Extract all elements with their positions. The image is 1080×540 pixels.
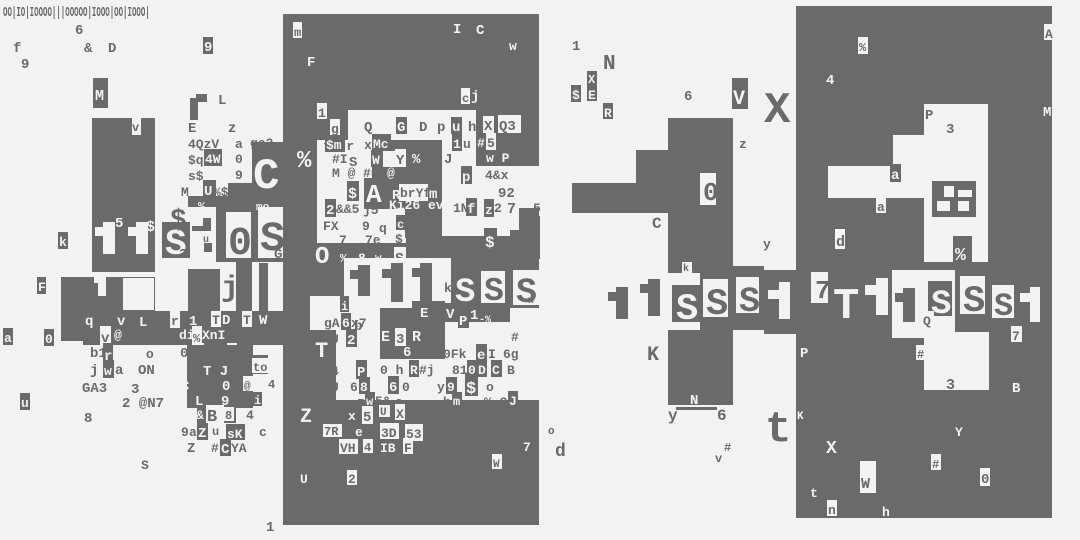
svg-text:D: D — [222, 313, 230, 329]
svg-text:p: p — [437, 120, 445, 136]
svg-text:m: m — [453, 395, 460, 409]
svg-text:i: i — [254, 394, 261, 408]
svg-text:Z: Z — [187, 441, 195, 457]
svg-text:4: 4 — [364, 441, 371, 455]
svg-text:P: P — [800, 346, 808, 362]
svg-text:w: w — [528, 296, 534, 307]
svg-text:2: 2 — [347, 333, 355, 349]
svg-text:n: n — [828, 503, 836, 518]
svg-text:A: A — [1045, 27, 1053, 42]
svg-text:$: $ — [146, 219, 155, 236]
svg-text:0Fk: 0Fk — [443, 347, 467, 362]
svg-text:P: P — [459, 314, 467, 330]
svg-text:6: 6 — [350, 380, 358, 395]
svg-text:r: r — [171, 314, 179, 329]
svg-text:S: S — [516, 273, 537, 313]
svg-text:6: 6 — [684, 89, 692, 105]
svg-text:1: 1 — [470, 308, 478, 324]
svg-text:Q: Q — [364, 120, 372, 136]
svg-text:GA3: GA3 — [82, 381, 107, 397]
svg-text:6: 6 — [403, 345, 411, 361]
svg-text:u: u — [21, 396, 29, 411]
svg-text:k: k — [444, 281, 452, 296]
svg-text:7: 7 — [1012, 329, 1020, 344]
svg-text:j: j — [90, 363, 98, 379]
svg-text:@: @ — [244, 381, 251, 393]
svg-text:z: z — [739, 137, 747, 152]
svg-text:T: T — [315, 339, 328, 364]
svg-text:e: e — [355, 425, 363, 440]
svg-text:x: x — [348, 409, 356, 424]
svg-text:p: p — [462, 170, 470, 186]
svg-text:f: f — [467, 202, 475, 218]
svg-text:0: 0 — [235, 152, 243, 167]
svg-text:E: E — [588, 88, 596, 103]
svg-text:2: 2 — [326, 203, 334, 219]
svg-text:0: 0 — [45, 332, 53, 347]
svg-text:Mc: Mc — [373, 137, 389, 152]
svg-text:t: t — [765, 405, 791, 455]
svg-text:XnI: XnI — [202, 328, 225, 343]
svg-text:G: G — [397, 120, 405, 136]
svg-text:OO|IO|IOOOO|||OOOOO|IOOO|OO|IO: OO|IO|IOOOO|||OOOOO|IOOO|OO|IOOO| — [3, 6, 150, 21]
svg-text:5: 5 — [115, 216, 123, 232]
svg-text:$q: $q — [188, 153, 204, 168]
svg-text:7e: 7e — [365, 233, 381, 248]
svg-text:ev: ev — [428, 198, 444, 213]
svg-text:I: I — [453, 22, 461, 38]
svg-text:I: I — [488, 347, 496, 362]
svg-text:1: 1 — [266, 520, 274, 536]
svg-text:J: J — [509, 394, 517, 409]
svg-text:D: D — [478, 363, 486, 378]
svg-text:u: u — [463, 137, 471, 152]
svg-text:k: k — [59, 235, 67, 250]
svg-text:R: R — [604, 106, 612, 121]
svg-text:s$: s$ — [188, 169, 204, 184]
svg-text:to: to — [253, 361, 267, 375]
svg-text:y: y — [763, 237, 771, 252]
svg-text:X: X — [484, 119, 493, 135]
svg-text:b: b — [354, 319, 362, 335]
svg-text:4: 4 — [268, 378, 275, 392]
svg-text:0: 0 — [703, 178, 719, 208]
svg-text:4: 4 — [331, 364, 339, 379]
svg-text:X: X — [588, 73, 596, 87]
svg-text:V: V — [733, 88, 745, 111]
svg-text:#5: #5 — [363, 166, 379, 181]
svg-text:Z: Z — [198, 426, 206, 442]
svg-text:9: 9 — [204, 40, 212, 56]
svg-text:T: T — [833, 282, 859, 332]
svg-text:%: % — [412, 152, 421, 168]
svg-text:U: U — [380, 407, 387, 419]
svg-text:L: L — [139, 315, 147, 331]
svg-text:h: h — [443, 395, 451, 410]
svg-text:u: u — [212, 425, 219, 439]
svg-text:w: w — [509, 39, 517, 54]
svg-text:$: $ — [170, 206, 187, 237]
svg-text:P: P — [925, 108, 933, 124]
svg-text:7R: 7R — [324, 425, 339, 439]
svg-text:E: E — [420, 306, 428, 322]
svg-text:M: M — [181, 185, 189, 200]
svg-text:c: c — [259, 425, 267, 440]
svg-text:3: 3 — [179, 247, 187, 263]
svg-text:-%: -% — [479, 315, 491, 326]
svg-text:W: W — [861, 476, 870, 493]
svg-text:$: $ — [348, 186, 357, 203]
svg-text:u: u — [452, 120, 460, 136]
svg-text:VH: VH — [340, 441, 356, 456]
svg-text:YA: YA — [231, 441, 247, 456]
svg-text:6: 6 — [342, 316, 350, 331]
svg-text:5: 5 — [363, 410, 371, 426]
svg-text:ON: ON — [138, 363, 155, 379]
svg-text:V: V — [446, 307, 455, 323]
svg-text:2: 2 — [494, 201, 502, 216]
svg-text:E: E — [188, 121, 196, 137]
svg-text:L: L — [218, 93, 226, 109]
svg-text:M: M — [95, 88, 104, 105]
svg-text:J: J — [406, 218, 414, 233]
svg-text:a: a — [891, 168, 900, 184]
svg-text:Y: Y — [955, 425, 963, 440]
svg-text:C: C — [652, 215, 662, 233]
svg-text:w: w — [104, 364, 112, 379]
svg-text:$m: $m — [326, 138, 342, 153]
svg-text:z: z — [228, 121, 236, 137]
svg-text:FX: FX — [323, 219, 339, 234]
svg-text:N: N — [690, 393, 698, 409]
svg-text:S: S — [739, 282, 760, 322]
svg-text:G: G — [274, 247, 282, 263]
svg-text:h: h — [882, 505, 890, 520]
svg-text:C: C — [492, 363, 500, 378]
svg-text:B: B — [507, 363, 515, 378]
svg-text:4: 4 — [246, 408, 254, 423]
svg-text:S: S — [676, 289, 698, 331]
svg-text:W: W — [259, 313, 268, 329]
svg-text:$: $ — [466, 380, 476, 399]
svg-text:a: a — [877, 200, 885, 215]
svg-text:k: k — [683, 263, 689, 275]
svg-text:j5: j5 — [363, 203, 379, 218]
svg-text:i: i — [341, 300, 348, 314]
svg-text:3D: 3D — [381, 426, 397, 441]
svg-text:F: F — [307, 55, 315, 71]
svg-text:&: & — [84, 41, 93, 57]
svg-text:0: 0 — [402, 380, 410, 395]
svg-text:z: z — [485, 203, 493, 218]
svg-text:E: E — [381, 329, 390, 346]
svg-text:6: 6 — [75, 23, 83, 39]
svg-text:4&x: 4&x — [485, 168, 509, 183]
svg-text:Ki26: Ki26 — [389, 198, 420, 213]
svg-text:0: 0 — [222, 379, 230, 395]
svg-text:Z: Z — [300, 406, 312, 429]
svg-text:D: D — [419, 120, 427, 136]
svg-text:5: 5 — [533, 201, 541, 216]
svg-text:%: % — [859, 41, 867, 55]
svg-text:J: J — [444, 152, 452, 168]
svg-text:X: X — [764, 86, 791, 136]
svg-text:a: a — [4, 331, 12, 346]
svg-text:% 8: % 8 — [484, 395, 508, 410]
svg-text:y: y — [437, 380, 445, 395]
svg-text:U: U — [331, 380, 339, 395]
svg-text:gA: gA — [324, 316, 340, 331]
svg-text:3: 3 — [946, 122, 954, 138]
svg-text:f: f — [13, 41, 21, 57]
svg-text:1: 1 — [572, 39, 580, 55]
svg-text:W: W — [493, 459, 500, 471]
svg-text:Y: Y — [396, 153, 405, 169]
svg-text:N: N — [603, 53, 616, 76]
svg-text:T: T — [243, 313, 251, 328]
svg-text:6: 6 — [717, 407, 727, 425]
svg-text:q: q — [85, 314, 93, 330]
svg-text:#: # — [477, 136, 485, 151]
svg-text:5: 5 — [487, 136, 495, 151]
svg-text:C: C — [476, 23, 485, 39]
svg-text:$: $ — [572, 88, 580, 103]
svg-text:7: 7 — [523, 440, 531, 455]
svg-text:2: 2 — [348, 472, 356, 487]
svg-text:v: v — [132, 121, 139, 135]
svg-text:c: c — [462, 92, 469, 106]
svg-text:D: D — [108, 41, 116, 57]
svg-text:a: a — [189, 425, 197, 440]
svg-text:a: a — [115, 363, 124, 379]
svg-text:IB: IB — [380, 441, 396, 456]
svg-text:7: 7 — [507, 201, 516, 218]
svg-text:8: 8 — [225, 409, 232, 423]
svg-text:x: x — [364, 138, 372, 153]
svg-text:9: 9 — [235, 168, 243, 183]
svg-text:#: # — [511, 330, 519, 345]
svg-text:K: K — [797, 411, 804, 423]
svg-text:S: S — [931, 286, 951, 324]
svg-text:#j: #j — [419, 363, 435, 378]
svg-text:B: B — [1012, 381, 1021, 397]
svg-text:u: u — [203, 235, 209, 246]
svg-text:&&5: &&5 — [336, 202, 360, 217]
svg-text:C: C — [253, 152, 279, 202]
svg-text:T: T — [212, 313, 220, 328]
svg-text:O: O — [315, 244, 329, 271]
svg-text:S: S — [141, 458, 149, 473]
svg-text:4: 4 — [826, 73, 834, 89]
svg-text:0 h: 0 h — [380, 363, 404, 378]
svg-text:o: o — [146, 347, 154, 362]
svg-text:8: 8 — [84, 411, 92, 427]
svg-text:R: R — [410, 363, 418, 378]
svg-text:7: 7 — [339, 233, 347, 248]
svg-text:@: @ — [387, 166, 395, 181]
svg-text:g: g — [331, 122, 339, 137]
svg-text:%: % — [955, 246, 966, 266]
svg-text:6g: 6g — [503, 347, 519, 362]
svg-text:#: # — [724, 441, 731, 455]
svg-text:3: 3 — [946, 377, 955, 394]
svg-text:%: % — [297, 148, 312, 175]
svg-text:m: m — [294, 26, 301, 40]
svg-text:&: & — [196, 408, 204, 423]
svg-text:1: 1 — [453, 137, 461, 152]
svg-text:d: d — [836, 234, 845, 251]
svg-text:C: C — [221, 442, 230, 458]
svg-text:S: S — [994, 288, 1013, 325]
svg-text:h: h — [468, 120, 476, 136]
svg-text:1: 1 — [318, 106, 326, 121]
svg-text:w P: w P — [486, 151, 510, 166]
svg-text:j: j — [471, 89, 479, 105]
svg-text:2 @N7: 2 @N7 — [122, 396, 164, 412]
svg-text:o: o — [548, 426, 555, 438]
svg-text:7: 7 — [815, 276, 831, 306]
svg-text:$ P: $ P — [395, 232, 419, 247]
svg-text:M @: M @ — [332, 166, 356, 181]
svg-text:F: F — [404, 441, 412, 456]
svg-text:X: X — [396, 407, 404, 422]
svg-text:F: F — [38, 280, 46, 295]
svg-text:d: d — [555, 442, 566, 462]
svg-text:4W: 4W — [205, 152, 221, 167]
svg-text:X: X — [826, 439, 837, 459]
svg-text:$: $ — [485, 234, 495, 252]
svg-text:c: c — [397, 218, 404, 232]
svg-text:S: S — [963, 281, 985, 323]
svg-text:t: t — [810, 486, 818, 501]
svg-text:#I: #I — [332, 152, 348, 167]
svg-text:T J: T J — [203, 364, 228, 380]
svg-text:S: S — [706, 284, 728, 326]
svg-text:9: 9 — [362, 219, 370, 234]
svg-text:%: % — [198, 200, 206, 214]
svg-text:U: U — [300, 472, 308, 487]
svg-text:#: # — [211, 441, 219, 456]
svg-text:Q3: Q3 — [499, 119, 516, 135]
svg-text:K: K — [647, 344, 659, 367]
svg-text:#: # — [917, 348, 924, 362]
svg-text:9: 9 — [181, 425, 189, 440]
svg-text:M: M — [1043, 105, 1051, 121]
svg-text:R: R — [412, 329, 421, 346]
svg-text:o: o — [486, 380, 494, 395]
svg-text:0: 0 — [981, 472, 989, 488]
svg-text:v: v — [715, 452, 722, 466]
svg-text:Q: Q — [923, 314, 931, 329]
svg-text:C: C — [181, 379, 190, 395]
svg-text:#: # — [932, 458, 939, 472]
svg-text:a: a — [235, 137, 243, 152]
svg-text:@: @ — [114, 328, 122, 343]
svg-text:9: 9 — [21, 57, 29, 73]
